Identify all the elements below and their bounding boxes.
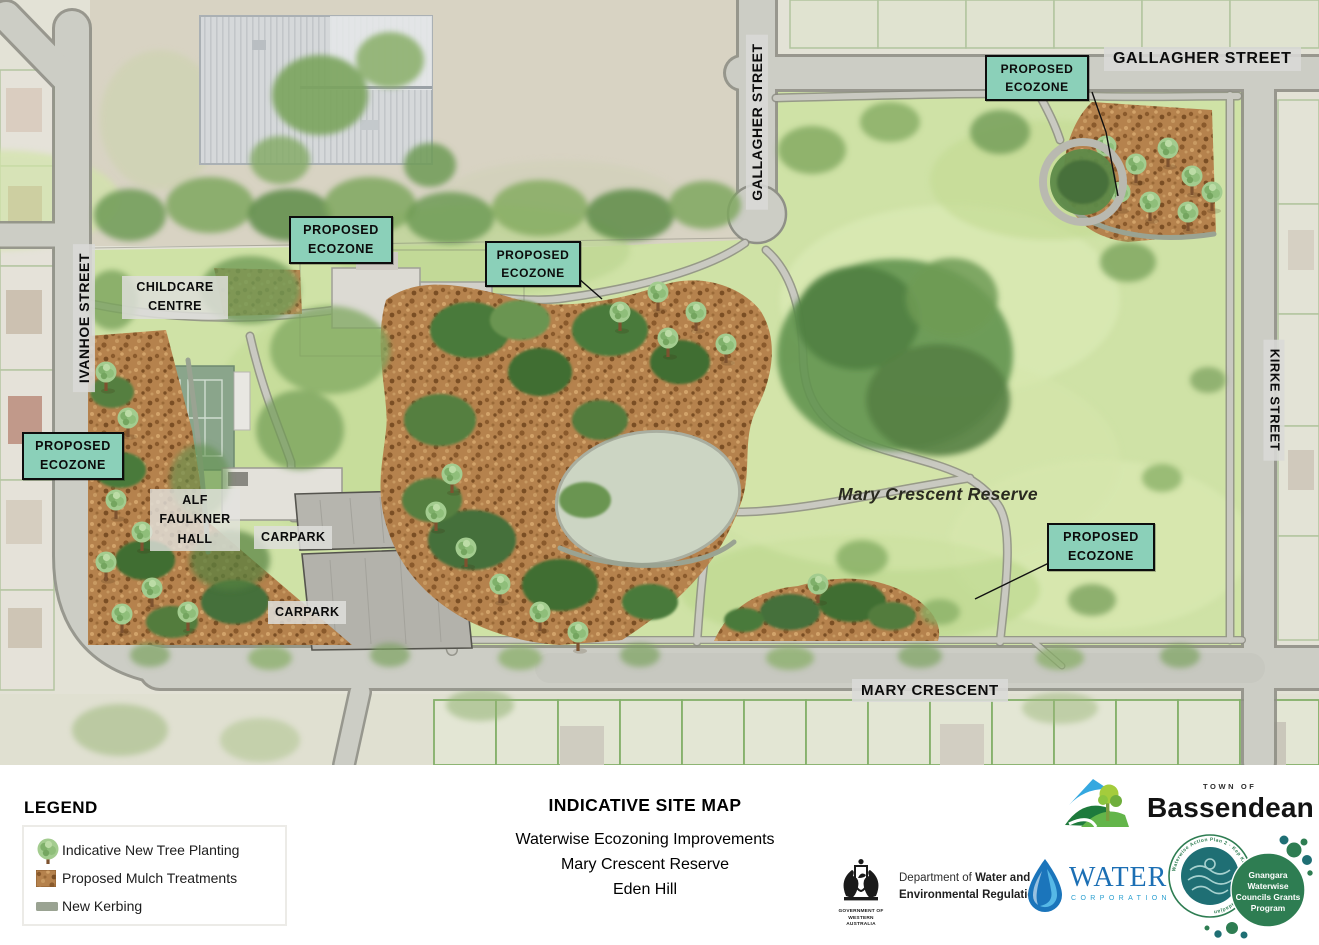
label-alf-faulkner-hall: ALF FAULKNER HALL [150,489,240,551]
bassendean-emblem-icon [1063,775,1143,836]
proposed-ecozone-box-2: PROPOSED ECOZONE [485,241,581,287]
map-subtitle-3: Eden Hill [420,881,870,899]
department-name: Department of Water and Environmental Re… [899,858,1042,929]
water-corp-name: WATER [1069,864,1171,892]
street-label-kirke: KIRKE STREET [1264,340,1285,461]
grants-line2: Waterwise [1247,881,1288,891]
site-map-canvas: GALLAGHER STREET GALLAGHER STREET IVANHO… [0,0,1319,765]
dept-line2: Environmental Regulation [899,889,1042,901]
map-subtitle-1: Waterwise Ecozoning Improvements [420,831,870,849]
tree-icon [36,837,62,864]
childcare-line1: CHILDCARE [136,280,213,294]
ecozone-line2: ECOZONE [487,264,579,282]
proposed-ecozone-box-3: PROPOSED ECOZONE [985,55,1089,101]
map-title: INDICATIVE SITE MAP [420,795,870,816]
dept-bold: Water and [975,872,1030,884]
map-subtitle-2: Mary Crescent Reserve [420,856,870,874]
legend-item-label: Proposed Mulch Treatments [62,870,237,886]
water-corporation-logo: WATER CORPORATION [1024,857,1171,918]
houses-south [0,689,1319,765]
indicative-site-map-page: GALLAGHER STREET GALLAGHER STREET IVANHO… [0,0,1319,941]
label-carpark-lower: CARPARK [268,601,346,624]
grants-line3: Councils Grants [1236,892,1301,902]
ecozone-line2: ECOZONE [1049,547,1153,566]
mulch-icon [36,870,62,887]
label-carpark-upper: CARPARK [254,526,332,549]
footer-panel: LEGEND Indicative New Tree Planting Prop… [0,765,1319,941]
grants-program-disc: Gnangara Waterwise Councils Grants Progr… [1231,853,1305,927]
ecozone-line1: PROPOSED [487,246,579,264]
street-label-mary-crescent: MARY CRESCENT [852,679,1008,702]
label-reserve-name: Mary Crescent Reserve [838,484,1038,505]
ecozone-line1: PROPOSED [291,221,391,240]
bassendean-tagline: TOWN OF [1147,782,1314,791]
circle-garden-feature [1043,142,1123,222]
legend-box: Indicative New Tree Planting Proposed Mu… [22,825,287,926]
street-label-gallagher-vertical: GALLAGHER STREET [746,34,768,209]
grants-line1: Gnangara [1248,870,1287,880]
ecozone-line2: ECOZONE [24,456,122,475]
crest-caption-2: WESTERN AUSTRALIA [833,916,889,929]
legend-item-mulch: Proposed Mulch Treatments [36,864,273,892]
kerb-icon [36,902,62,911]
ecozone-line1: PROPOSED [24,437,122,456]
ecozone-line2: ECOZONE [291,240,391,259]
government-logo: GOVERNMENT OF WESTERN AUSTRALIA Departme… [833,858,1042,929]
hall-line3: HALL [178,532,213,546]
ecozone-line1: PROPOSED [1049,528,1153,547]
proposed-ecozone-box-5: PROPOSED ECOZONE [1047,523,1155,571]
water-corp-subname: CORPORATION [1069,895,1171,902]
proposed-ecozone-box-1: PROPOSED ECOZONE [289,216,393,264]
aerial-basemap [0,0,1319,765]
legend-title: LEGEND [24,798,98,818]
grants-program-logo: Waterwise Action Plan 2 · Kep Katitjin ·… [1158,828,1316,945]
title-block: INDICATIVE SITE MAP Waterwise Ecozoning … [420,795,870,899]
childcare-line2: CENTRE [148,299,202,313]
street-label-ivanhoe: IVANHOE STREET [73,244,95,392]
bassendean-name: Bassendean [1147,792,1314,824]
proposed-ecozone-box-4: PROPOSED ECOZONE [22,432,124,480]
ecozone-line2: ECOZONE [987,78,1087,96]
grants-line4: Program [1251,903,1285,913]
legend-item-label: New Kerbing [62,898,142,914]
ecozone-line1: PROPOSED [987,60,1087,78]
hall-line2: FAULKNER [159,512,230,526]
label-childcare-centre: CHILDCARE CENTRE [122,276,228,319]
legend-item-label: Indicative New Tree Planting [62,842,239,858]
legend-item-tree: Indicative New Tree Planting [36,836,273,864]
water-droplet-icon [1024,857,1066,918]
crest-caption-1: GOVERNMENT OF [833,909,889,916]
wa-coat-of-arms-icon [836,891,886,908]
bassendean-logo: TOWN OF Bassendean [1063,775,1314,836]
dept-prefix: Department of [899,872,975,884]
legend-item-kerb: New Kerbing [36,892,273,920]
hall-line1: ALF [182,493,208,507]
street-label-gallagher-horizontal: GALLAGHER STREET [1104,47,1301,71]
